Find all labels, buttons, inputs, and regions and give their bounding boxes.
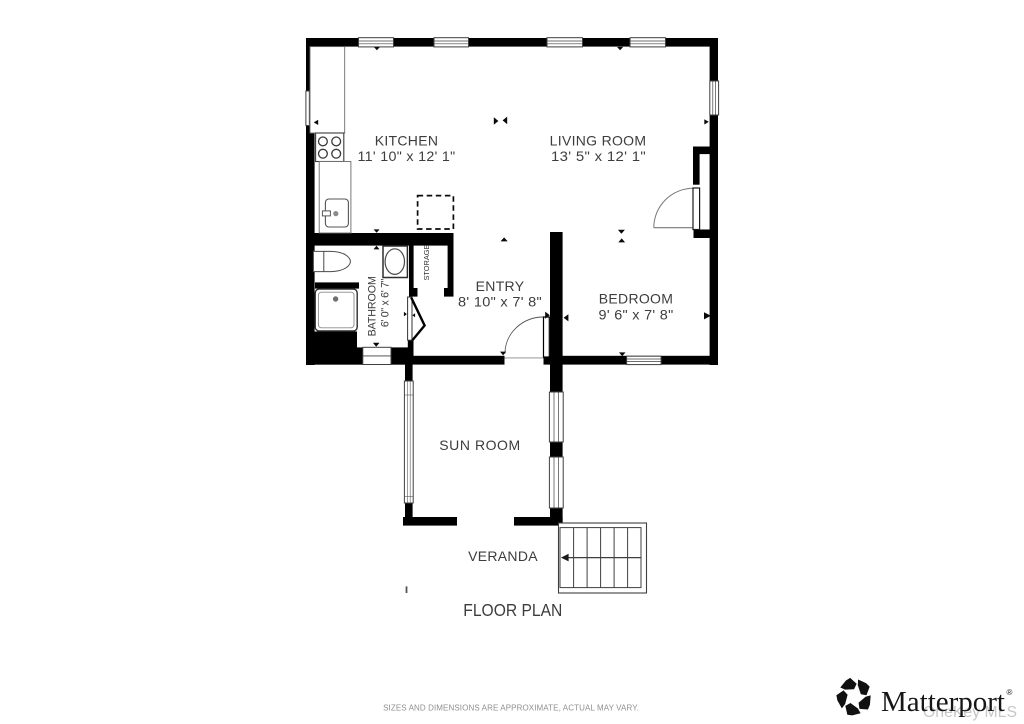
svg-text:FLOOR PLAN: FLOOR PLAN [463,600,562,620]
svg-text:11' 10" x 12' 1": 11' 10" x 12' 1" [358,148,456,164]
svg-text:®: ® [1007,688,1013,697]
svg-text:BATHROOM: BATHROOM [367,276,379,336]
svg-text:9' 6" x 7' 8": 9' 6" x 7' 8" [599,306,674,322]
svg-text:SUN ROOM: SUN ROOM [439,437,520,453]
svg-text:BEDROOM: BEDROOM [599,291,673,307]
svg-text:13' 5" x 12' 1": 13' 5" x 12' 1" [551,148,646,164]
svg-text:STORAGE: STORAGE [422,244,431,280]
svg-text:SIZES AND DIMENSIONS ARE APPRO: SIZES AND DIMENSIONS ARE APPROXIMATE, AC… [383,704,639,713]
svg-text:8' 10" x 7' 8": 8' 10" x 7' 8" [458,294,542,310]
svg-text:VERANDA: VERANDA [468,548,538,564]
svg-text:Matterport: Matterport [881,687,1005,718]
svg-text:LIVING ROOM: LIVING ROOM [550,133,647,149]
svg-text:KITCHEN: KITCHEN [375,133,439,149]
svg-text:6' 0" x 6' 7": 6' 0" x 6' 7" [379,278,391,327]
svg-text:ENTRY: ENTRY [476,278,525,294]
